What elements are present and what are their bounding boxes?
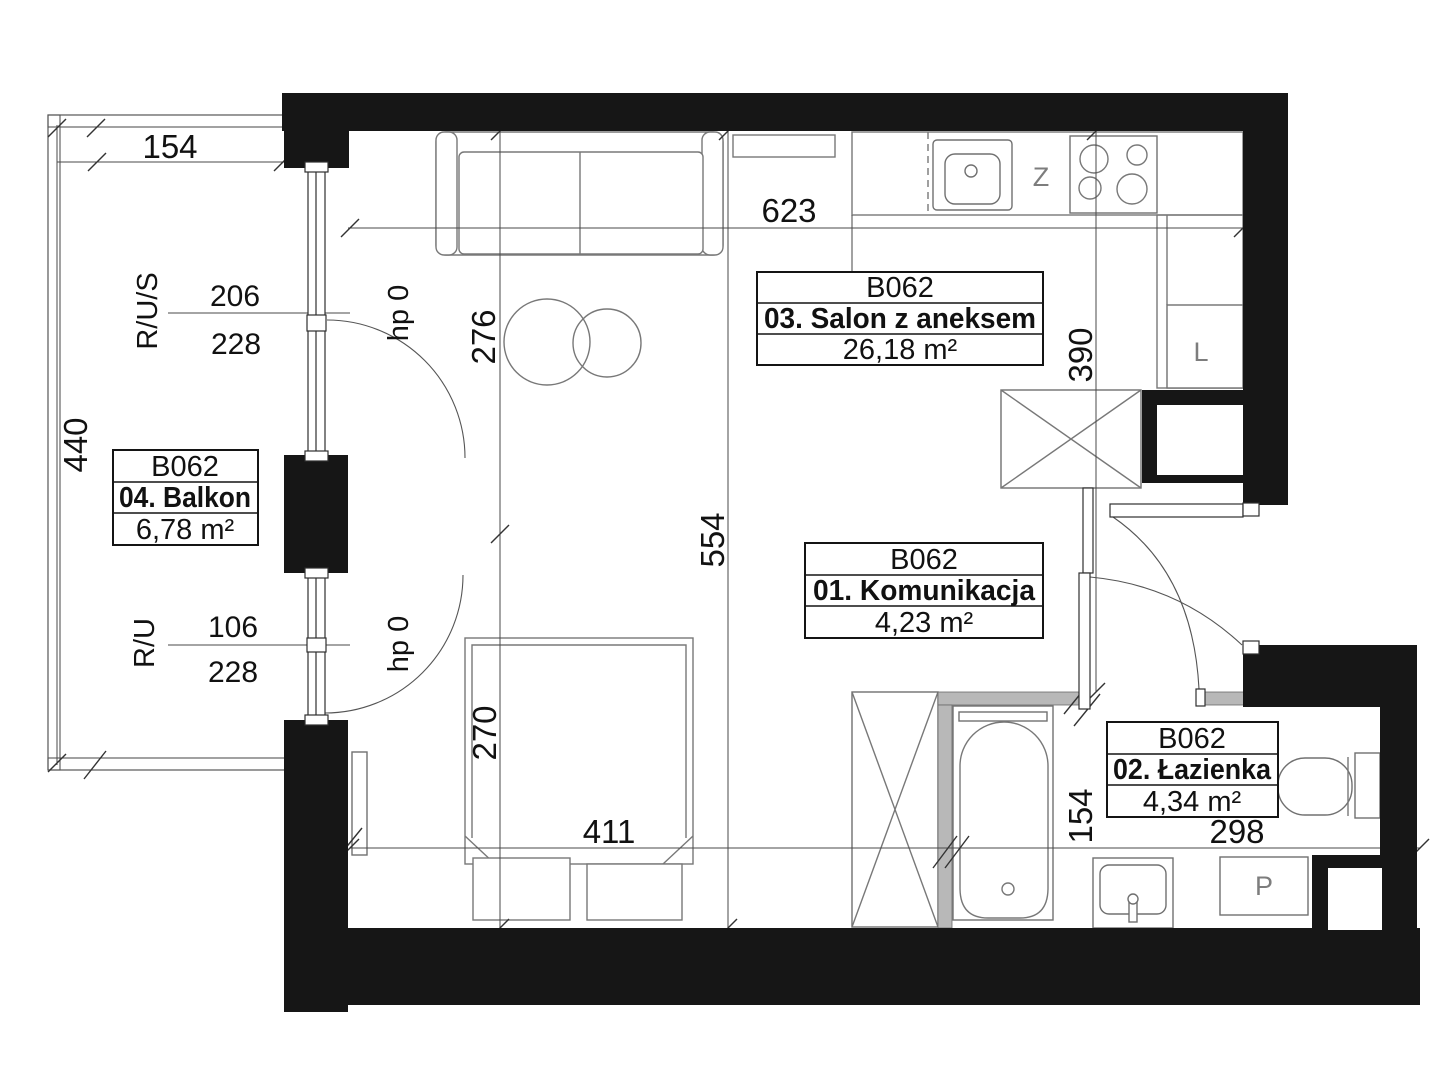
room-label-komunikacja: B062 01. Komunikacja 4,23 m² — [805, 543, 1043, 639]
dim-sleeping-width: 411 — [583, 813, 636, 850]
dim-balcony-width: 154 — [142, 128, 197, 165]
floor-plan-page: B062 03. Salon z aneksem 26,18 m² B062 0… — [0, 0, 1452, 1086]
ventilation-shaft — [1001, 390, 1141, 488]
balcony-railing-bottom — [48, 758, 312, 770]
balcony-railing-top — [48, 115, 312, 127]
dim-bathroom-depth: 154 — [1062, 788, 1099, 843]
window2-sill-label: hp 0 — [383, 616, 415, 672]
door-swing-arcs — [325, 320, 1242, 713]
dim-living-width: 623 — [761, 192, 816, 229]
window2-type-label: R/U — [129, 618, 161, 668]
room-name: 04. Balkon — [119, 482, 251, 514]
bedside-table — [473, 858, 570, 920]
floor-plan: B062 03. Salon z aneksem 26,18 m² B062 0… — [0, 0, 1452, 1086]
dim-living-depth-total: 554 — [694, 512, 731, 567]
dim-window2-height: 228 — [208, 656, 258, 689]
entrance-door-swing — [1113, 517, 1199, 689]
dim-window1-height: 228 — [211, 328, 261, 361]
room-label-salon: B062 03. Salon z aneksem 26,18 m² — [757, 272, 1043, 366]
fridge-label: L — [1193, 337, 1208, 367]
washbasin — [1093, 858, 1173, 928]
dim-kitchen-wall: 390 — [1062, 327, 1099, 382]
dim-balcony-length: 440 — [57, 417, 94, 472]
dim-sleeping-depth: 270 — [466, 705, 503, 760]
unit-id: B062 — [1158, 723, 1226, 755]
room-area: 26,18 m² — [843, 334, 958, 366]
room-area: 4,23 m² — [875, 607, 974, 639]
sofa — [436, 132, 723, 255]
bedside-table — [587, 864, 682, 920]
room-name: 01. Komunikacja — [813, 575, 1036, 607]
stove — [1070, 136, 1157, 213]
balcony-door-window-2 — [305, 568, 328, 725]
unit-id: B062 — [866, 272, 934, 304]
toilet — [1278, 753, 1380, 818]
wall-niche — [1328, 868, 1382, 930]
washing-machine-label: P — [1255, 871, 1273, 901]
room-name: 02. Łazienka — [1113, 754, 1272, 786]
wall-shelf — [733, 135, 835, 157]
dim-living-depth-upper: 276 — [465, 309, 502, 364]
wardrobe — [852, 692, 938, 927]
room-label-lazienka: B062 02. Łazienka 4,34 m² — [1107, 722, 1278, 818]
wall-niche — [1157, 405, 1243, 475]
kitchen-sink — [933, 140, 1012, 210]
room-area: 6,78 m² — [136, 514, 235, 546]
unit-id: B062 — [890, 544, 958, 576]
bathtub — [953, 706, 1053, 920]
radiator — [352, 752, 367, 855]
entrance-door — [1110, 503, 1259, 654]
window1-type-label: R/U/S — [132, 272, 164, 349]
room-label-balkon: B062 04. Balkon 6,78 m² — [113, 450, 258, 546]
dim-window1-width: 206 — [210, 280, 260, 313]
balcony-door-window-1 — [305, 162, 328, 461]
partition-stub — [1083, 488, 1093, 573]
coffee-table — [504, 299, 641, 385]
unit-id: B062 — [151, 451, 219, 483]
bathroom-door — [1079, 488, 1205, 709]
dim-window2-width: 106 — [208, 611, 258, 644]
dim-bathroom-width: 298 — [1209, 813, 1264, 850]
bathroom-door-swing — [1090, 577, 1242, 645]
window1-sill-label: hp 0 — [383, 285, 415, 341]
room-name: 03. Salon z aneksem — [764, 303, 1036, 335]
bed — [465, 638, 693, 920]
dishwasher-label: Z — [1033, 162, 1050, 192]
